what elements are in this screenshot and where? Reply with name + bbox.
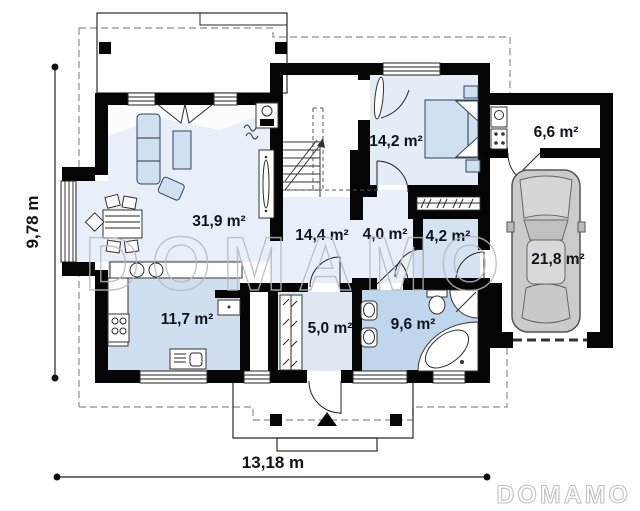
window-bedroom [383,63,440,75]
bay-window [61,181,76,262]
window-bathroom-2 [433,371,465,383]
car-hood [520,176,572,218]
terrace [97,13,287,93]
window-living-1 [128,93,155,105]
window-living-2 [214,93,237,105]
wall-garage-right [600,93,613,348]
front-door [309,381,341,414]
window-kitchen [140,371,207,383]
floor-plan-drawing: 31,9 m² 14,4 m² 14,2 m² 4,0 m² 4,2 m² 6,… [0,0,640,511]
terrace-post [275,42,287,54]
room-label-boiler: 6,6 m² [534,124,579,141]
coffee-table [173,131,191,169]
car-rear-window [522,284,570,323]
wall-garage-top [490,93,613,105]
dimension-width: 13,18 m [54,453,491,481]
floor-plan-page: 31,9 m² 14,4 m² 14,2 m² 4,0 m² 4,2 m² 6,… [0,0,640,511]
room-label-garage: 21,8 m² [531,251,584,268]
wall-left-upper [95,93,108,175]
nightstand [464,86,478,98]
bay-block-top [62,167,95,181]
car-windshield [524,220,568,240]
wall-stair-bedroom-up [358,63,370,80]
dimension-width-label: 13,18 m [242,453,304,472]
wall-bedroom-bottom-right [408,185,490,197]
car-mirror [578,222,585,232]
watermark-corner: DOMAMO [496,481,631,509]
boiler-room-fixtures [491,107,507,149]
water-heater [491,107,507,127]
closet-rail [417,197,480,210]
boiler [491,129,507,149]
kitchen-island [170,349,206,369]
porch-post [270,414,282,426]
watermark-center: DOMAMO [85,222,512,307]
washbasin [361,328,377,347]
room-label-bedroom: 14,2 m² [369,133,422,150]
sofa [137,114,160,184]
wall-closet-left [408,197,418,210]
dimension-height-label: 9,78 m [23,196,42,249]
dimension-height: 9,78 m [23,64,59,382]
room-label-bathroom: 9,6 m² [391,316,436,333]
window-bathroom-1 [353,371,407,383]
porch-post [390,414,402,426]
nightstand [466,160,480,172]
wall-top-left [95,93,273,105]
room-label-kitchen: 11,7 m² [161,311,214,328]
tv-cabinet [259,150,274,218]
entrance-arrow [317,412,337,426]
room-label-vestibule: 5,0 m² [308,320,353,337]
window-strip [244,371,270,383]
wall-garage-post-right [587,332,613,348]
stove [108,314,129,342]
bed [425,100,478,158]
wall-hall-stub [350,150,363,220]
fireplace [256,103,278,128]
entrance-porch [233,383,413,451]
wall-top-right [273,63,490,75]
terrace-post [99,42,111,54]
wall-closet-bottom [408,210,490,219]
